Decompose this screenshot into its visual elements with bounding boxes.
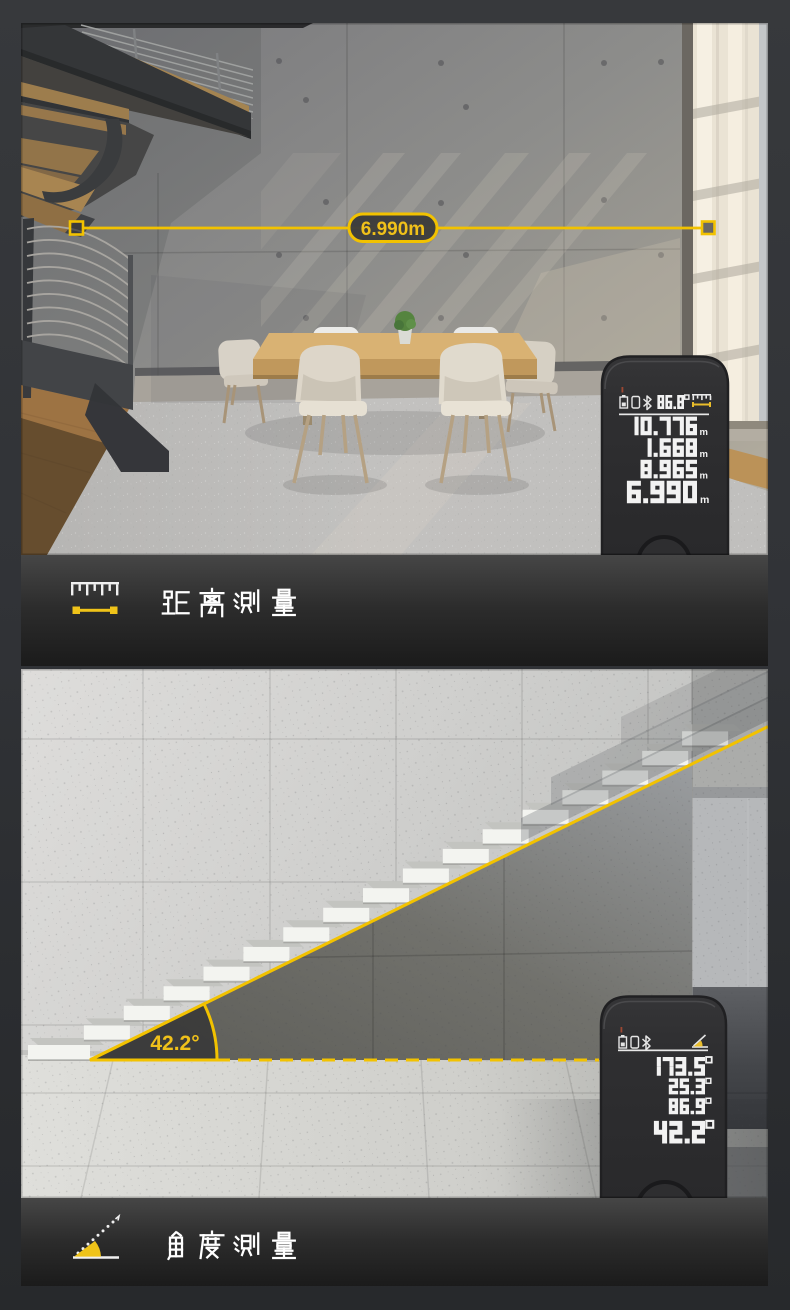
svg-text:42.2°: 42.2° — [150, 1032, 199, 1055]
svg-text:6.990m: 6.990m — [361, 219, 425, 240]
svg-text:m: m — [700, 427, 708, 438]
svg-text:m: m — [700, 470, 708, 481]
svg-text:m: m — [700, 494, 709, 506]
svg-text:m: m — [700, 449, 708, 460]
